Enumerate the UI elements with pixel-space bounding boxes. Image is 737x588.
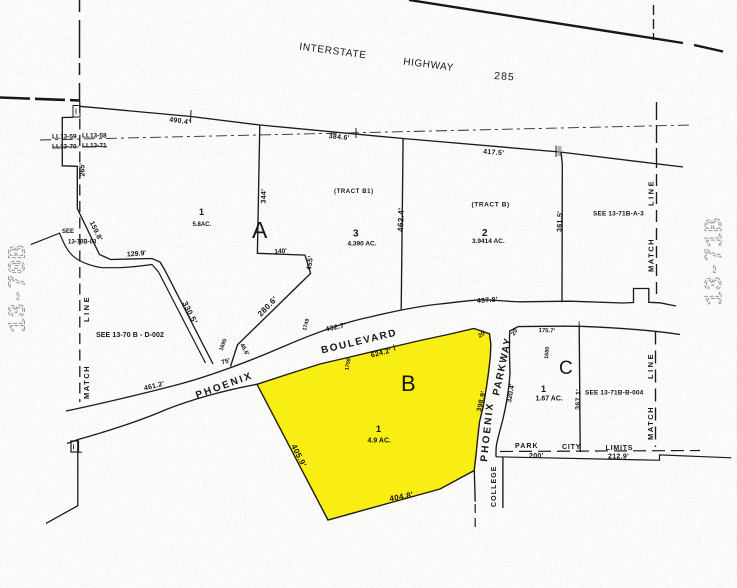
svg-text:MATCH: MATCH — [82, 365, 91, 399]
svg-text:LL13-59: LL13-59 — [52, 134, 77, 141]
svg-text:175.7': 175.7' — [538, 328, 555, 335]
svg-text:462.4': 462.4' — [396, 207, 406, 232]
svg-text:LL13-71: LL13-71 — [82, 143, 107, 150]
svg-text:(TRACT B): (TRACT B) — [472, 202, 510, 209]
svg-text:1: 1 — [199, 207, 204, 217]
svg-text:A: A — [252, 217, 268, 243]
svg-text:SEE 13-71B-A-3: SEE 13-71B-A-3 — [593, 211, 644, 218]
svg-text:MATCH: MATCH — [646, 406, 655, 440]
svg-text:SEE: SEE — [62, 229, 74, 235]
svg-text:140': 140' — [274, 248, 287, 256]
svg-text:LINE: LINE — [647, 179, 656, 206]
svg-text:LINE: LINE — [646, 352, 655, 379]
svg-text:265': 265' — [80, 163, 87, 177]
svg-text:367.1': 367.1' — [575, 389, 583, 410]
svg-text:MATCH: MATCH — [647, 238, 656, 272]
svg-text:SEE 13-71B-B-004: SEE 13-71B-B-004 — [585, 390, 644, 397]
svg-text:3: 3 — [353, 229, 359, 240]
svg-text:129.9': 129.9' — [127, 250, 147, 258]
svg-text:3.9414 AC.: 3.9414 AC. — [472, 238, 505, 245]
svg-text:1.67 AC.: 1.67 AC. — [536, 396, 563, 403]
svg-text:361.5': 361.5' — [557, 211, 565, 232]
svg-text:(TRACT B1): (TRACT B1) — [334, 189, 374, 195]
svg-text:344': 344' — [261, 189, 269, 204]
svg-text:437.8': 437.8' — [477, 297, 498, 305]
svg-text:1: 1 — [541, 384, 546, 394]
svg-text:LL13-58: LL13-58 — [82, 133, 107, 140]
svg-text:C: C — [559, 358, 573, 379]
svg-text:1680: 1680 — [544, 346, 551, 359]
svg-text:5.8AC.: 5.8AC. — [193, 222, 212, 228]
svg-text:PARK: PARK — [515, 443, 539, 450]
svg-text:13-70B-03: 13-70B-03 — [68, 240, 97, 246]
svg-text:B: B — [401, 371, 416, 396]
svg-text:13-71B: 13-71B — [702, 218, 729, 306]
svg-text:COLLEGE: COLLEGE — [491, 465, 498, 507]
svg-text:CITY: CITY — [562, 444, 581, 451]
svg-text:1: 1 — [376, 424, 381, 434]
svg-text:285: 285 — [494, 70, 515, 83]
svg-text:SEE 13-70 B - D-002: SEE 13-70 B - D-002 — [96, 332, 164, 339]
svg-text:13-70B: 13-70B — [6, 245, 33, 333]
svg-text:200': 200' — [529, 453, 544, 460]
svg-text:LINE: LINE — [82, 295, 91, 322]
svg-text:4.9 AC.: 4.9 AC. — [368, 438, 392, 445]
svg-text:4.390 AC.: 4.390 AC. — [348, 240, 377, 247]
